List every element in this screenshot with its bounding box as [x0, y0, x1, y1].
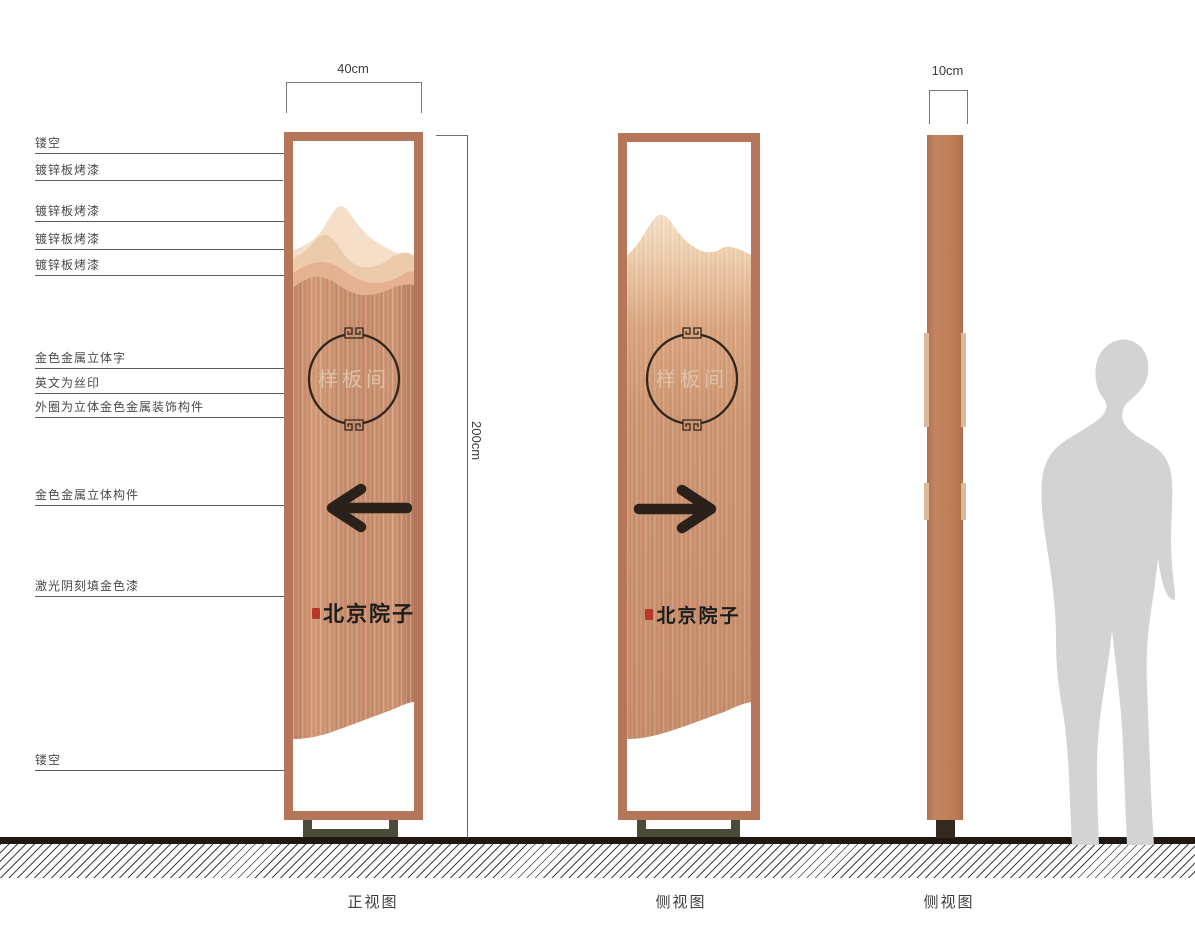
plate-text: 样板间	[656, 368, 728, 391]
view-label-front: 正视图	[313, 891, 433, 912]
dim-40cm-label: 40cm	[286, 61, 420, 76]
dim-200cm-line	[467, 135, 468, 838]
brand-text: 北京院子	[656, 606, 740, 627]
callout-outer-ring: 外圈为立体金色金属装饰构件	[35, 398, 316, 418]
brand-logo: 北京院子	[293, 598, 424, 628]
callout-cutout-bottom: 镂空	[35, 751, 301, 771]
brand-text: 北京院子	[323, 602, 415, 626]
ground-hatch	[0, 844, 1195, 878]
dim-200cm-label: 200cm	[469, 421, 484, 460]
seal-icon	[645, 609, 653, 620]
callout-cutout-top: 镂空	[35, 134, 306, 154]
front-view-panel: 样板间 北京院子	[284, 132, 423, 820]
seal-icon	[312, 608, 320, 619]
middle-panel-art: 样板间	[627, 142, 751, 811]
plate-text: 样板间	[318, 368, 390, 391]
view-label-side-2: 侧视图	[889, 891, 1009, 912]
dim-40cm-bracket	[286, 82, 422, 113]
person-silhouette	[1030, 330, 1195, 850]
dim-200cm-tick	[436, 135, 467, 136]
middle-base-bar	[637, 829, 740, 837]
side-profile-column	[927, 135, 963, 820]
front-base-bar	[303, 829, 398, 837]
view-label-side-1: 侧视图	[621, 891, 741, 912]
ground-line	[0, 837, 1195, 844]
callout-galvanized-4: 镀锌板烤漆	[35, 256, 293, 276]
callout-galvanized-3: 镀锌板烤漆	[35, 230, 295, 250]
dim-10cm-label: 10cm	[929, 63, 966, 78]
brand-logo: 北京院子	[627, 601, 755, 628]
callout-galvanized-2: 镀锌板烤漆	[35, 202, 323, 222]
side-protrusion-ring-right	[961, 333, 966, 427]
side-protrusion-arrow-right	[961, 483, 966, 520]
panel-body-brush-texture	[627, 215, 751, 739]
callout-galvanized-1: 镀锌板烤漆	[35, 161, 283, 181]
dim-10cm-bracket	[929, 90, 968, 124]
signage-design-drawing: 镂空 镀锌板烤漆 镀锌板烤漆 镀锌板烤漆 镀锌板烤漆 金色金属立体字 英文为丝印…	[0, 0, 1195, 927]
front-panel-art: 样板间	[293, 141, 414, 811]
side-protrusion-ring-left	[924, 333, 929, 427]
side-protrusion-arrow-left	[924, 483, 929, 520]
side-view-panel: 样板间 北京院子	[618, 133, 760, 820]
